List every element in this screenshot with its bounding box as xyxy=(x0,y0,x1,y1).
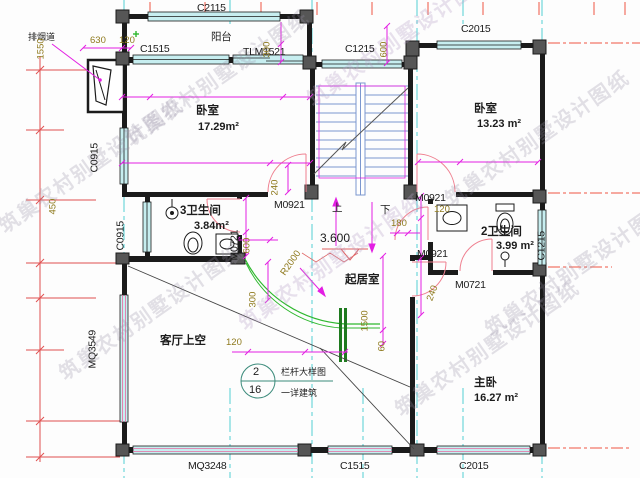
room-area-bath2: 3.99 m² xyxy=(496,241,534,252)
room-area-master: 16.27 m² xyxy=(474,393,518,404)
window-label-c1515-bottom: C1515 xyxy=(340,461,369,472)
dim-1500: 1500 xyxy=(361,310,371,331)
room-area-bath3: 3.84m² xyxy=(194,221,229,232)
window-label-c1515-top: C1515 xyxy=(140,44,169,55)
callout-sheet: 16 xyxy=(249,385,261,396)
window-label-c1215-right: C1215 xyxy=(537,231,548,260)
dim-450: 450 xyxy=(49,199,59,215)
window-label-c0915-lower: C0915 xyxy=(116,221,127,250)
window-label-mq3248: MQ3248 xyxy=(188,461,226,472)
callout-number: 2 xyxy=(253,367,259,378)
level-value: 3.600 xyxy=(320,232,350,244)
room-label-bath2: 2卫生间 xyxy=(481,227,522,239)
room-label-bath3: 3卫生间 xyxy=(180,206,221,218)
room-label-bedroom1: 卧室 xyxy=(196,106,219,118)
dim-60: 60 xyxy=(378,341,388,352)
dimension-chain-left xyxy=(26,56,120,462)
window-label-c2115: C2115 xyxy=(197,3,226,14)
window-label-c0915-upper: C0915 xyxy=(90,143,101,172)
window-label-c2015-top: C2015 xyxy=(461,24,490,35)
floor-plan-canvas: 筑巢农村别墅设计图纸 筑巢农村别墅设计图纸 筑巢农村别墅设计图纸 筑巢农村别墅设… xyxy=(0,0,640,478)
door-label-m0921-bedroom1: M0921 xyxy=(274,200,305,211)
callout-title: 栏杆大样图 xyxy=(281,368,326,377)
room-label-living: 起居室 xyxy=(345,275,380,287)
room-label-void: 客厅上空 xyxy=(160,336,206,348)
room-label-bedroom2: 卧室 xyxy=(474,104,497,116)
smoke-flue xyxy=(52,44,124,112)
dim-120-top: 120 xyxy=(119,36,135,46)
door-label-m0721-bath2: M0721 xyxy=(455,280,486,291)
dim-630: 630 xyxy=(90,36,106,46)
door-label-m0921-hall: M0921 xyxy=(415,193,446,204)
stair-up-label: 上 xyxy=(332,203,342,214)
room-area-bedroom2: 13.23 m² xyxy=(477,119,521,130)
dim-180: 180 xyxy=(391,219,407,229)
dim-120-callout: 120 xyxy=(226,338,242,348)
dim-300-top: 300 xyxy=(263,42,273,58)
dim-600-bath3: 600 xyxy=(243,238,253,254)
room-label-master: 主卧 xyxy=(474,378,497,390)
window-label-c2015-bottom: C2015 xyxy=(459,461,488,472)
room-area-bedroom1: 17.29m² xyxy=(198,122,239,133)
dim-600-top: 600 xyxy=(380,42,390,58)
door-label-m0921-master: M0921 xyxy=(417,249,448,260)
window-label-c1215-top: C1215 xyxy=(345,44,374,55)
stair-down-label: 下 xyxy=(380,205,390,216)
room-label-balcony: 阳台 xyxy=(211,32,231,43)
dim-240-bedroom1: 240 xyxy=(271,180,281,196)
dim-120-hall: 120 xyxy=(434,205,450,215)
window-label-mq3549: MQ3549 xyxy=(88,330,99,368)
dim-300-railing: 300 xyxy=(249,292,259,308)
door-label-m0721-bath3: M0721 xyxy=(230,230,241,261)
callout-note: 一详建筑 xyxy=(281,389,317,398)
dim-1550: 1550 xyxy=(37,38,47,59)
